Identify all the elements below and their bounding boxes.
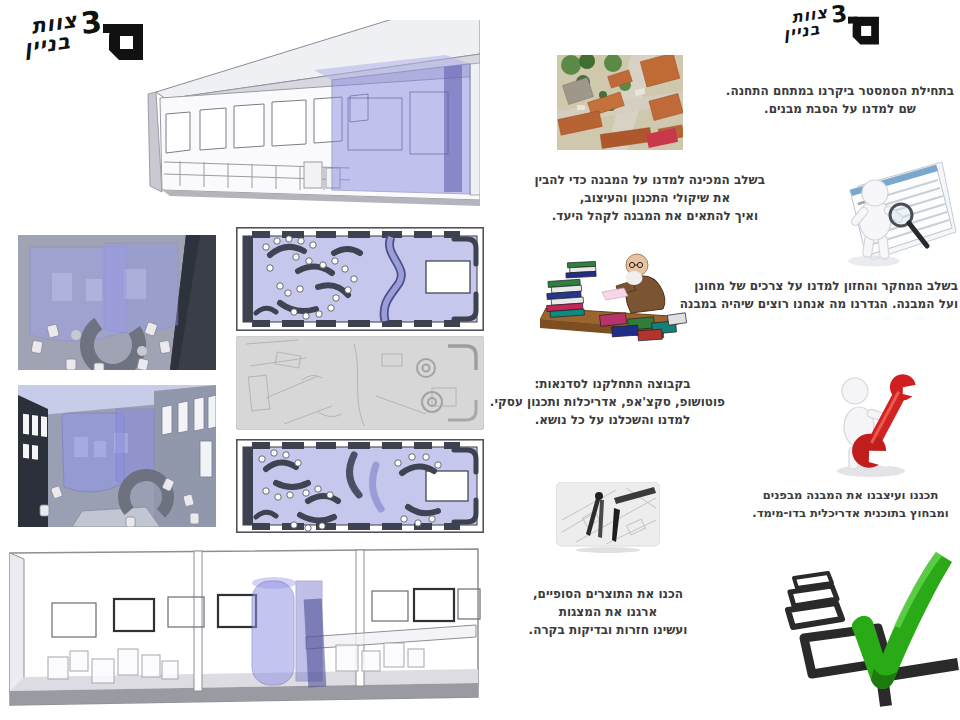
step-text-final-products: הכנו את התוצרים הסופיים, ארגנו את המצגות…	[502, 585, 714, 639]
green-checkmark-icon	[770, 528, 960, 713]
step-line: ומבחוץ בתוכנית אדריכלית בדו-מימד.	[748, 504, 953, 522]
step-line: ועל המבנה. הגדרנו מה אנחנו רוצים שיהיה ב…	[700, 295, 958, 313]
logo-word-bottom: בניין	[782, 21, 821, 42]
step-text-design-stage: תכננו ועיצבנו את המבנה מבפנים ומבחוץ בתו…	[748, 486, 953, 522]
logo-square-mark-icon	[848, 10, 882, 48]
inspection-figure-icon	[826, 158, 956, 268]
step-line: ועשינו חזרות ובדיקות בקרה.	[502, 621, 714, 639]
step-text-research-stage: בשלב המחקר והחזון למדנו על צרכים של מחונ…	[700, 277, 958, 313]
step-line: בתחילת הסמסטר ביקרנו במתחם התחנה.	[725, 82, 955, 100]
interior-render-2	[18, 385, 216, 527]
presentation-slide: צוות בניין 3 צוות בניין 3	[0, 0, 960, 720]
step-line: שם למדנו על הסבת מבנים.	[725, 100, 955, 118]
step-text-workshops: בקבוצה התחלקנו לסדנאות: פוטושופ, סקצ'אפ,…	[500, 375, 725, 429]
step-text-prep-stage: בשלב המכינה למדנו על המבנה כדי להבין את …	[545, 171, 765, 225]
professor-books-icon	[540, 250, 690, 343]
step-line: ארגנו את המצגות	[502, 603, 714, 621]
step-line: בקבוצה התחלקנו לסדנאות:	[500, 375, 725, 393]
exterior-render	[100, 20, 480, 235]
logo-word-bottom: בניין	[22, 31, 71, 58]
floor-plan-color-2	[236, 439, 484, 533]
step-line: את שיקולי התכנון והעיצוב,	[545, 189, 765, 207]
step-line: למדנו והשכלנו על כל נושא.	[500, 411, 725, 429]
long-section-render	[6, 545, 482, 713]
aerial-photo-icon	[557, 55, 683, 150]
logo-script-text: צוות בניין	[780, 5, 831, 42]
step-line: ואיך להתאים את המבנה לקהל היעד.	[545, 207, 765, 225]
step-line: הכנו את התוצרים הסופיים,	[502, 585, 714, 603]
drafting-tools-icon	[556, 482, 660, 554]
team-logo-right: צוות בניין 3	[782, 8, 882, 48]
wrench-figure-icon	[815, 365, 937, 480]
floor-plan-sketch	[236, 336, 484, 430]
logo-script-text: צוות בניין	[19, 10, 81, 58]
logo-digit: 3	[830, 3, 848, 25]
step-line: בשלב המחקר והחזון למדנו על צרכים של מחונ…	[700, 277, 958, 295]
step-line: פוטושופ, סקצ'אפ, אדריכלות ותכנון עסקי.	[500, 393, 725, 411]
interior-render-1	[18, 235, 216, 370]
step-line: בשלב המכינה למדנו על המבנה כדי להבין	[545, 171, 765, 189]
step-text-site-visit: בתחילת הסמסטר ביקרנו במתחם התחנה. שם למד…	[725, 82, 955, 118]
step-line: תכננו ועיצבנו את המבנה מבפנים	[748, 486, 953, 504]
floor-plan-color-1	[236, 227, 484, 331]
